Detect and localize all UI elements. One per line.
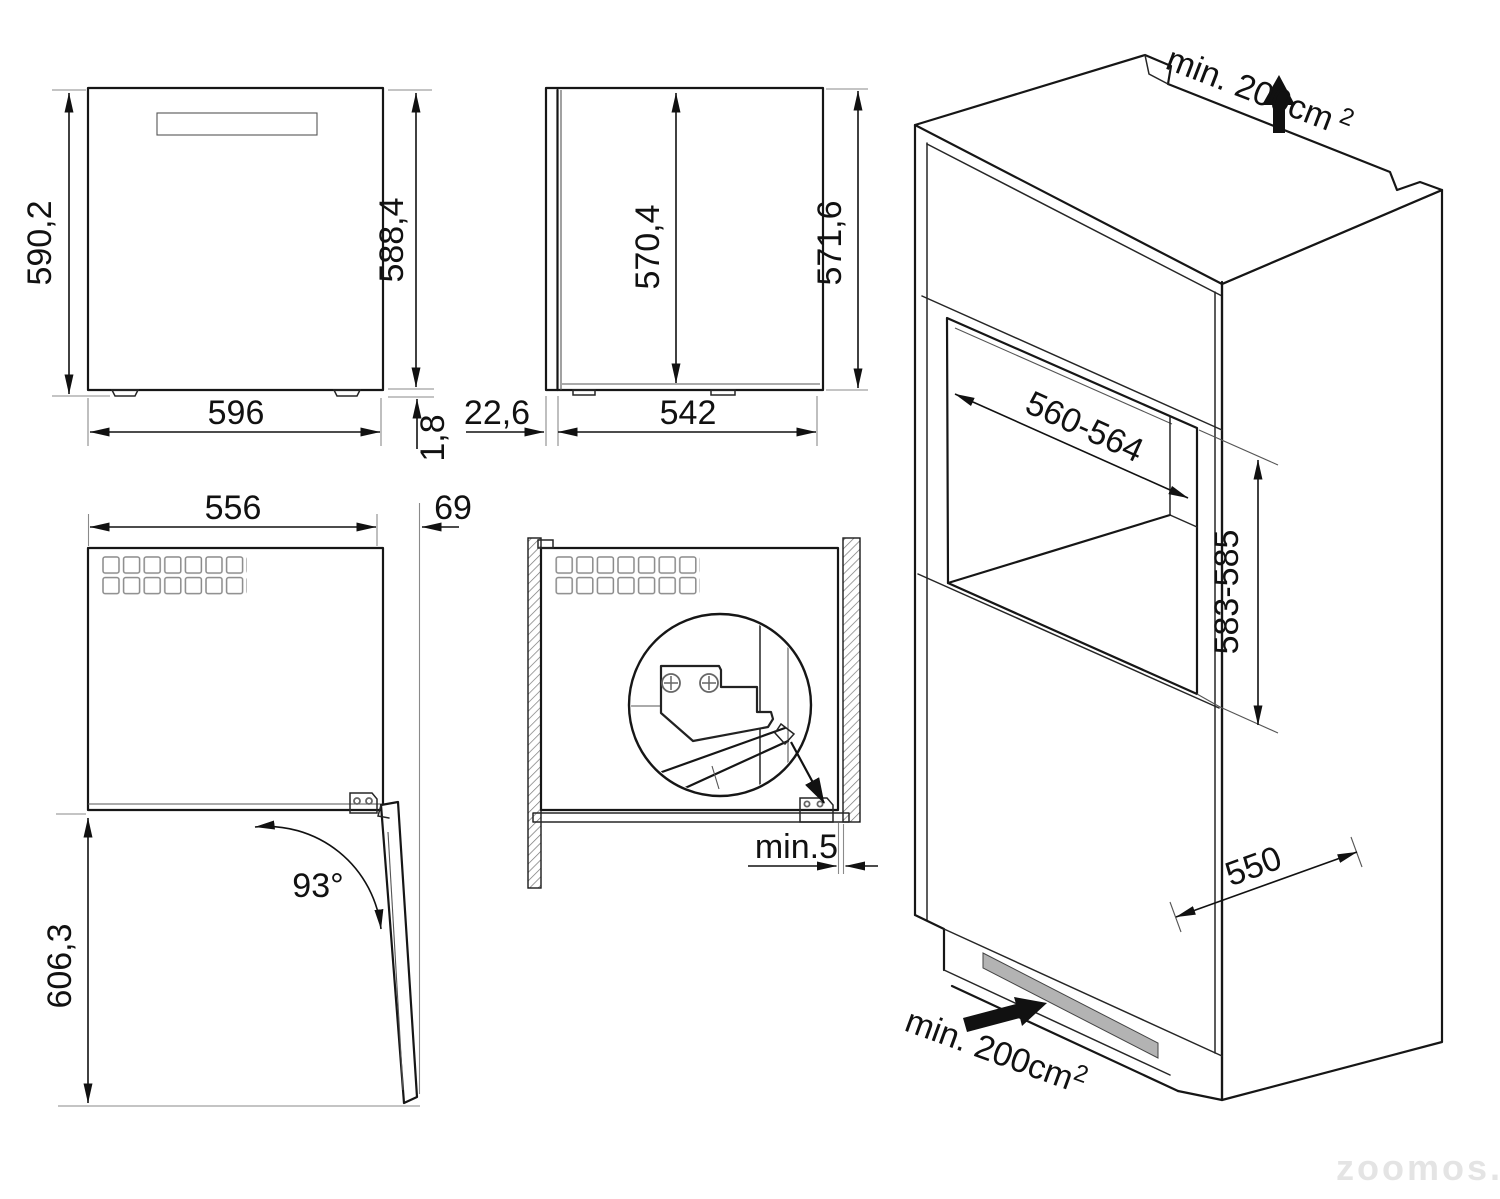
vent-grid [555, 556, 700, 597]
iso-niche-bottom-frame-line [918, 574, 1219, 708]
iso-niche-floor-back-edge [1170, 515, 1197, 527]
dim-label-niche-height: 583-585 [1208, 530, 1246, 655]
dim-label-side-depth: 542 [660, 394, 717, 432]
dim-label-front-height-right: 588,4 [373, 197, 411, 282]
iso-niche-floor-left-edge [948, 515, 1170, 583]
dim-label-front-width: 596 [208, 394, 265, 432]
top-view-door-open: 93° 556 69 606,3 [41, 489, 472, 1106]
hinge-screw-icon [354, 798, 360, 804]
dim-label-door-angle: 93° [292, 867, 343, 905]
hinge-screw-icon [366, 798, 372, 804]
dim-label-side-total-height: 571,6 [811, 200, 849, 285]
bracket-screw-icon [804, 801, 809, 806]
dim-label-niche-width: 560-564 [1020, 384, 1149, 470]
dim-label-front-height-left: 590,2 [21, 200, 59, 285]
detail-screw-icon [662, 674, 680, 692]
side-foot-front [573, 390, 595, 395]
iso-right-face [1222, 190, 1442, 1100]
front-panel-edge [533, 813, 849, 822]
dim-label-side-clearance: min.5 [755, 828, 838, 866]
dimension-diagram-canvas: 590,2 588,4 596 1,8 570,4 571,6 22,6 542 [0, 0, 1500, 1199]
detail-screw-icon [700, 674, 718, 692]
isometric-niche-view: 560-564 583-585 550 min. 200cm2 min. 200… [900, 37, 1442, 1102]
watermark: zoomos.by [1336, 1147, 1500, 1188]
iso-plinth-step [915, 915, 944, 970]
iso-niche-opening [947, 318, 1197, 694]
side-view: 570,4 571,6 22,6 542 [464, 88, 868, 446]
front-view: 590,2 588,4 596 1,8 [21, 88, 452, 462]
bracket-screw-icon [817, 801, 822, 806]
dim-label-top-width: 556 [205, 489, 262, 527]
dim-label-door-thickness: 22,6 [464, 394, 530, 432]
top-view-installed: min.5 [528, 538, 878, 888]
ext-line [1170, 902, 1181, 932]
vent-grid [102, 556, 247, 597]
dim-label-side-inner-height: 570,4 [629, 204, 667, 289]
front-cabinet-outline [88, 88, 383, 390]
iso-bottom-front-corner [1178, 1091, 1222, 1100]
dim-label-door-projection: 69 [434, 489, 472, 527]
label-vent-top-sup: 2 [1336, 102, 1358, 132]
dim-label-foot-height: 1,8 [414, 414, 452, 461]
side-cabinet-outline [546, 88, 823, 390]
technical-drawing-page: 590,2 588,4 596 1,8 570,4 571,6 22,6 542 [0, 0, 1500, 1199]
cabinet-wall-right [843, 538, 860, 822]
open-door-panel [381, 802, 417, 1103]
dim-label-depth-door-open: 606,3 [41, 923, 79, 1008]
cabinet-wall-left [528, 538, 541, 888]
